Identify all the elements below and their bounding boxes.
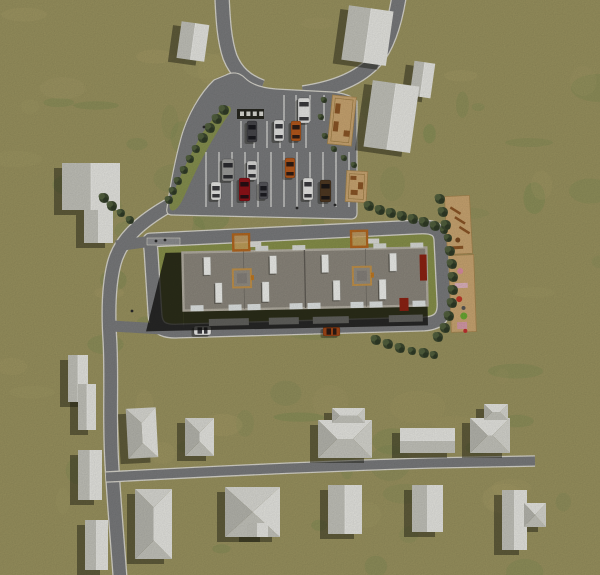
site-plan-render (0, 0, 600, 575)
site-plan-svg (0, 0, 600, 575)
grain-overlay (0, 0, 600, 575)
